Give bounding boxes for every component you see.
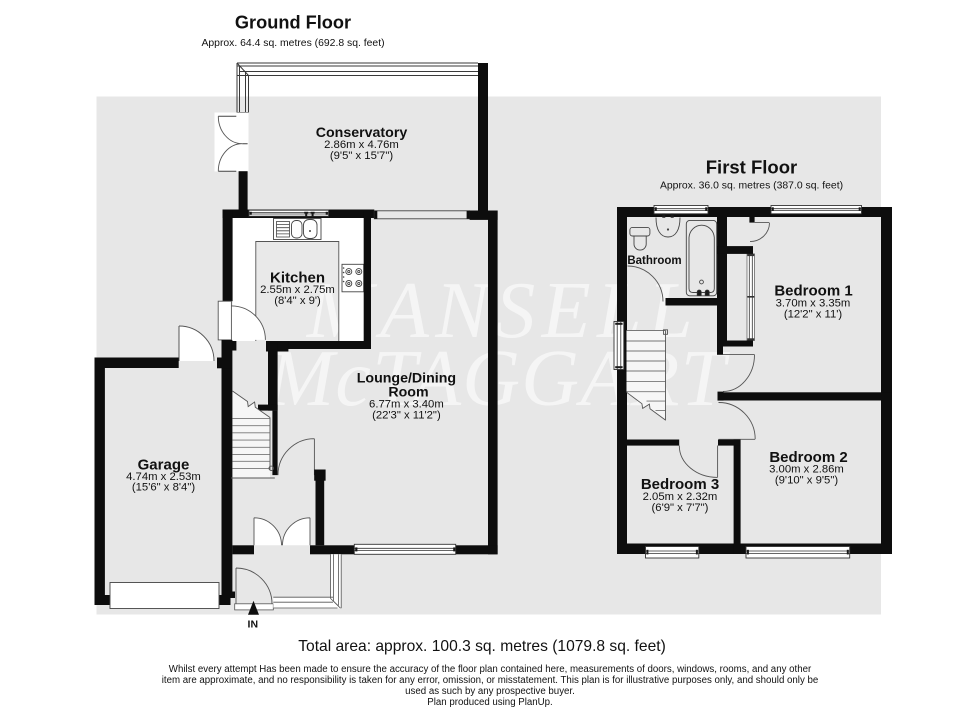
svg-text:Approx. 36.0 sq. metres (387.0: Approx. 36.0 sq. metres (387.0 sq. feet) [660,181,843,192]
svg-text:(6'9" x 7'7"): (6'9" x 7'7") [652,502,709,514]
svg-text:used as such by any prospectiv: used as such by any prospective buyer. [405,686,575,697]
svg-text:Bathroom: Bathroom [627,255,681,267]
svg-text:(9'5" x 15'7"): (9'5" x 15'7") [330,150,393,162]
svg-text:(9'10" x 9'5"): (9'10" x 9'5") [775,475,838,487]
svg-text:First Floor: First Floor [706,157,797,178]
svg-text:Total area: approx. 100.3 sq.: Total area: approx. 100.3 sq. metres (10… [298,638,666,655]
svg-text:(8'4" x 9'): (8'4" x 9') [274,295,321,307]
svg-text:item are approximate, and no r: item are approximate, and no responsibil… [162,675,819,686]
svg-text:(22'3" x 11'2"): (22'3" x 11'2") [372,410,441,422]
svg-text:Plan produced using PlanUp.: Plan produced using PlanUp. [427,697,552,708]
svg-text:(12'2" x 11'): (12'2" x 11') [784,309,843,321]
svg-text:(15'6" x 8'4"): (15'6" x 8'4") [132,482,195,494]
svg-text:IN: IN [248,619,259,631]
svg-text:Approx. 64.4 sq. metres (692.8: Approx. 64.4 sq. metres (692.8 sq. feet) [201,38,384,49]
svg-text:Ground Floor: Ground Floor [235,13,351,33]
svg-text:Whilst every attempt Has been: Whilst every attempt Has been made to en… [169,664,812,675]
